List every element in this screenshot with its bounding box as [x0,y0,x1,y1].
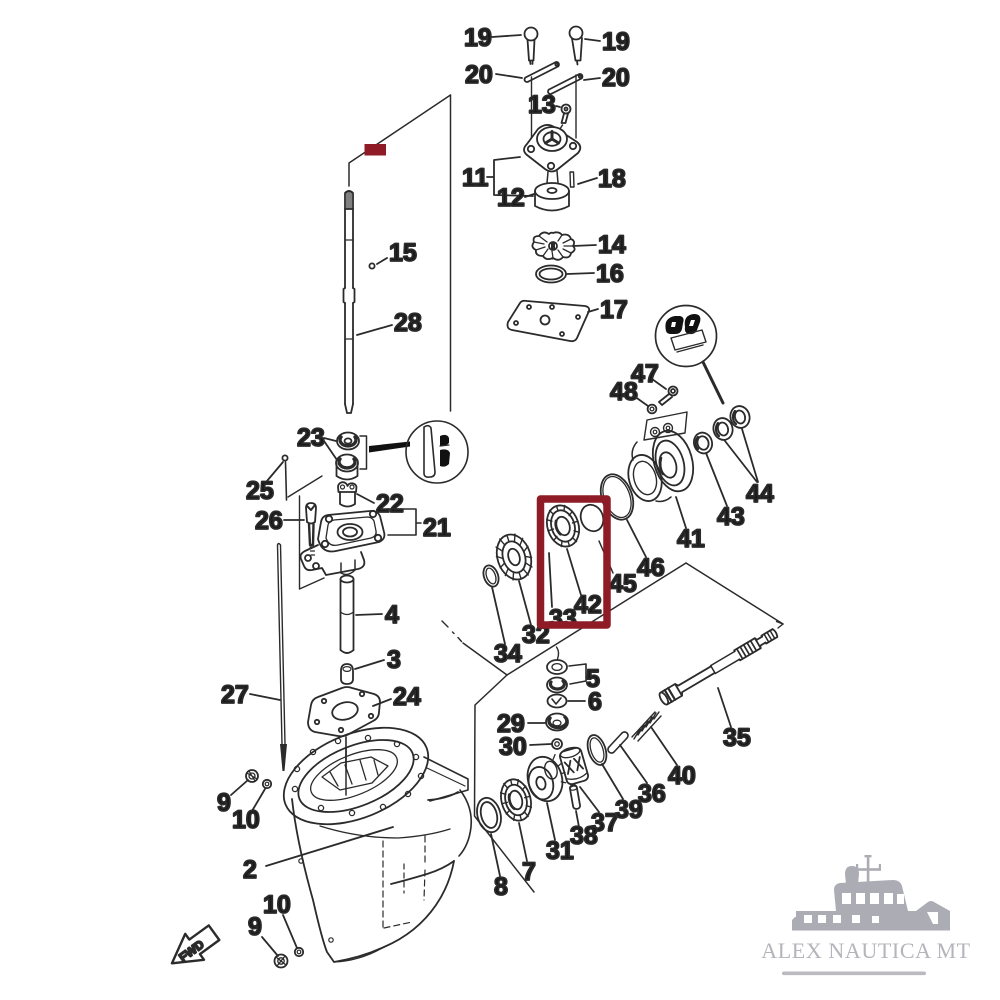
svg-text:13: 13 [528,91,556,119]
svg-text:2: 2 [243,856,257,884]
svg-text:18: 18 [598,165,626,193]
svg-text:21: 21 [423,514,451,542]
svg-text:35: 35 [723,724,751,752]
svg-text:40: 40 [668,762,696,790]
svg-text:11: 11 [462,164,489,192]
svg-text:38: 38 [570,822,598,850]
svg-text:45: 45 [609,570,637,598]
svg-text:20: 20 [465,61,493,89]
svg-text:25: 25 [246,477,274,505]
svg-text:33: 33 [549,605,577,633]
svg-text:ALEX NAUTICA MT: ALEX NAUTICA MT [761,938,970,963]
svg-text:27: 27 [221,681,249,709]
svg-text:41: 41 [677,525,705,553]
svg-text:28: 28 [394,309,422,337]
svg-text:36: 36 [638,780,666,808]
svg-text:12: 12 [497,184,525,212]
svg-text:7: 7 [522,858,536,886]
svg-text:48: 48 [610,378,638,406]
svg-text:43: 43 [717,503,745,531]
svg-text:6: 6 [588,688,602,716]
svg-text:4: 4 [385,601,399,629]
svg-text:16: 16 [596,260,624,288]
svg-text:9: 9 [217,789,231,817]
svg-text:24: 24 [393,683,421,711]
svg-text:19: 19 [464,24,492,52]
svg-text:46: 46 [637,554,665,582]
svg-text:44: 44 [746,480,774,508]
svg-text:23: 23 [297,424,325,452]
svg-text:42: 42 [574,591,602,619]
svg-text:10: 10 [232,806,260,834]
svg-text:30: 30 [499,733,527,761]
svg-text:19: 19 [602,28,630,56]
svg-text:20: 20 [602,64,630,92]
svg-text:14: 14 [598,231,626,259]
svg-text:3: 3 [387,646,401,674]
svg-text:15: 15 [389,239,417,267]
svg-text:26: 26 [255,507,283,535]
svg-text:17: 17 [600,296,628,324]
svg-text:22: 22 [376,490,404,518]
svg-text:8: 8 [494,873,508,901]
svg-text:10: 10 [263,891,291,919]
svg-text:34: 34 [494,640,522,668]
svg-text:9: 9 [248,913,262,941]
